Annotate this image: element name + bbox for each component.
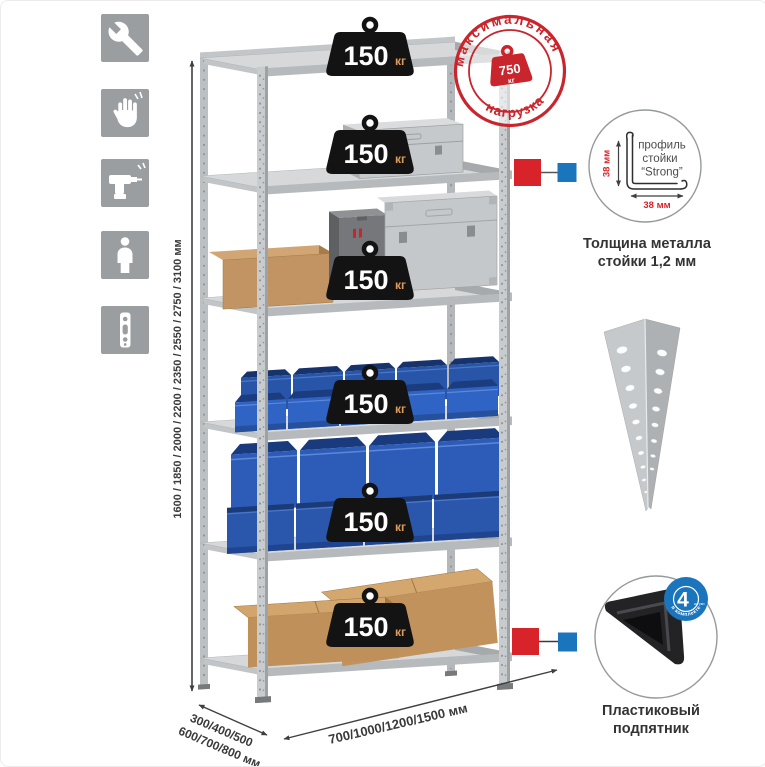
corner-post-image	[604, 319, 680, 511]
badge-value: 150	[343, 41, 388, 71]
detail-marker-blue	[558, 633, 577, 652]
profile-caption-1: Толщина металла	[583, 236, 712, 252]
callout-top	[514, 159, 577, 186]
width-dimension: 700/1000/1200/1500 мм	[284, 670, 557, 747]
detail-marker-blue	[558, 163, 577, 182]
foot-caption-1: Пластиковый	[602, 703, 700, 719]
shelf-marker-red	[512, 628, 539, 655]
profile-caption-2: стойки 1,2 мм	[598, 254, 697, 270]
svg-text:“Strong”: “Strong”	[641, 167, 683, 179]
product-infographic: 150 кг 150 кг 150 кг 150 кг 150 кг	[0, 0, 765, 767]
height-dimension-label: 1600 / 1850 / 2000 / 2200 / 2350 / 2550 …	[172, 239, 184, 518]
height-dimension: 1600 / 1850 / 2000 / 2200 / 2350 / 2550 …	[172, 61, 192, 691]
shelf-load-badge: 150 кг	[326, 19, 414, 76]
shelf-marker-red	[514, 159, 541, 186]
svg-text:профиль: профиль	[638, 140, 686, 152]
cardboard-box	[209, 244, 333, 310]
svg-text:150: 150	[343, 389, 388, 419]
svg-text:кг: кг	[507, 75, 515, 85]
svg-text:кг: кг	[395, 278, 406, 292]
rack-diagram: 150 кг 150 кг 150 кг 150 кг 150 кг	[1, 1, 765, 766]
width-dimension-label: 700/1000/1200/1500 мм	[327, 700, 469, 747]
svg-text:4: 4	[677, 589, 689, 612]
svg-text:штуки: штуки	[694, 602, 705, 606]
svg-text:кг: кг	[395, 402, 406, 416]
foot-detail-circle: 4 штуки в комплекте Пластиковый подпятни…	[595, 576, 717, 737]
callout-bottom	[512, 628, 577, 655]
profile-detail-circle: 38 мм 38 мм профиль стойки “Strong” Толщ…	[583, 110, 712, 270]
svg-text:150: 150	[343, 139, 388, 169]
profile-dim-vertical: 38 мм	[602, 150, 613, 177]
depth-dimension: 300/400/500 600/700/800 мм	[176, 705, 267, 766]
foot-caption-2: подпятник	[613, 721, 690, 737]
profile-dim-horizontal: 38 мм	[643, 200, 670, 211]
svg-text:150: 150	[343, 265, 388, 295]
svg-text:кг: кг	[395, 625, 406, 639]
svg-text:кг: кг	[395, 520, 406, 534]
svg-text:150: 150	[343, 612, 388, 642]
svg-text:стойки: стойки	[642, 153, 677, 165]
max-load-stamp: максимальная нагрузка 750 кг	[445, 4, 575, 134]
svg-text:150: 150	[343, 507, 388, 537]
badge-unit: кг	[395, 54, 406, 68]
svg-text:кг: кг	[395, 152, 406, 166]
in-set-count-badge: 4 штуки в комплекте	[664, 577, 708, 621]
